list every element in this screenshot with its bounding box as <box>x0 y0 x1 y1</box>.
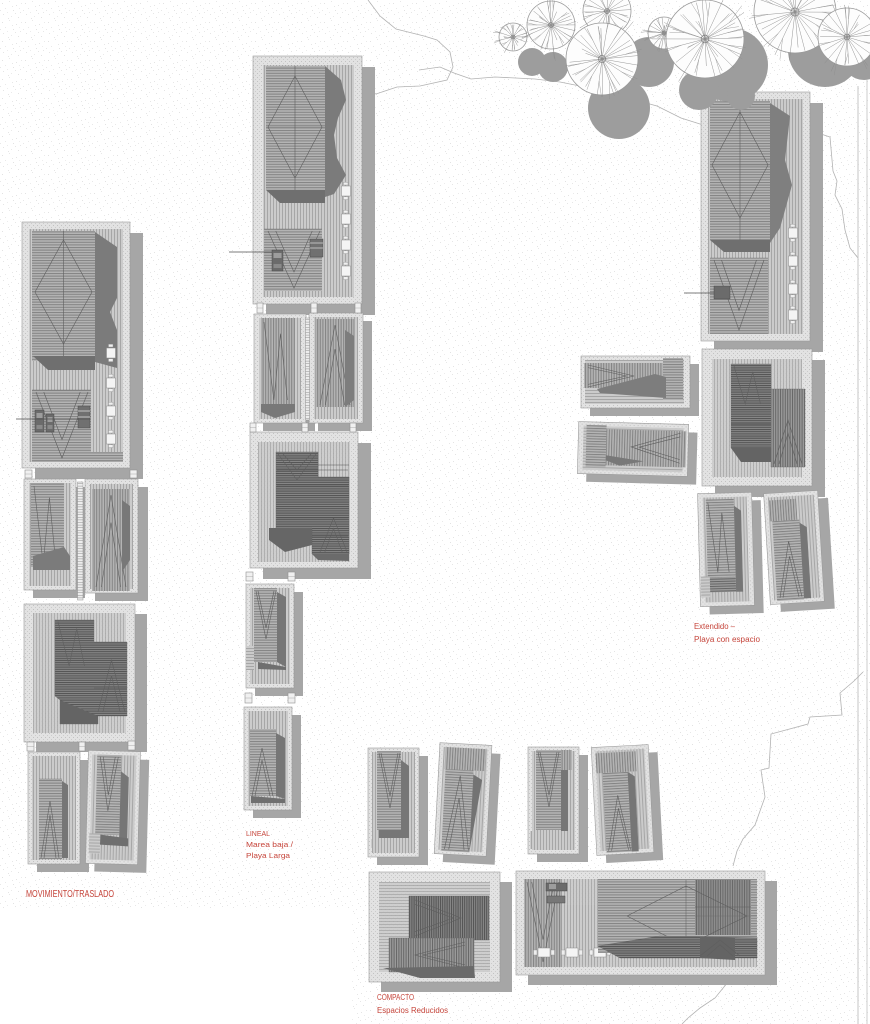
svg-text:Extendido –: Extendido – <box>694 622 736 631</box>
svg-text:COMPACTO: COMPACTO <box>377 993 414 1002</box>
svg-text:Playa Larga: Playa Larga <box>246 851 291 860</box>
svg-text:Espacios Reducidos: Espacios Reducidos <box>377 1006 448 1015</box>
svg-text:MOVIMIENTO/TRASLADO: MOVIMIENTO/TRASLADO <box>26 888 114 900</box>
svg-text:Playa con espacio: Playa con espacio <box>694 635 761 644</box>
svg-text:Marea baja /: Marea baja / <box>246 840 294 849</box>
svg-text:LINEAL: LINEAL <box>246 829 270 838</box>
